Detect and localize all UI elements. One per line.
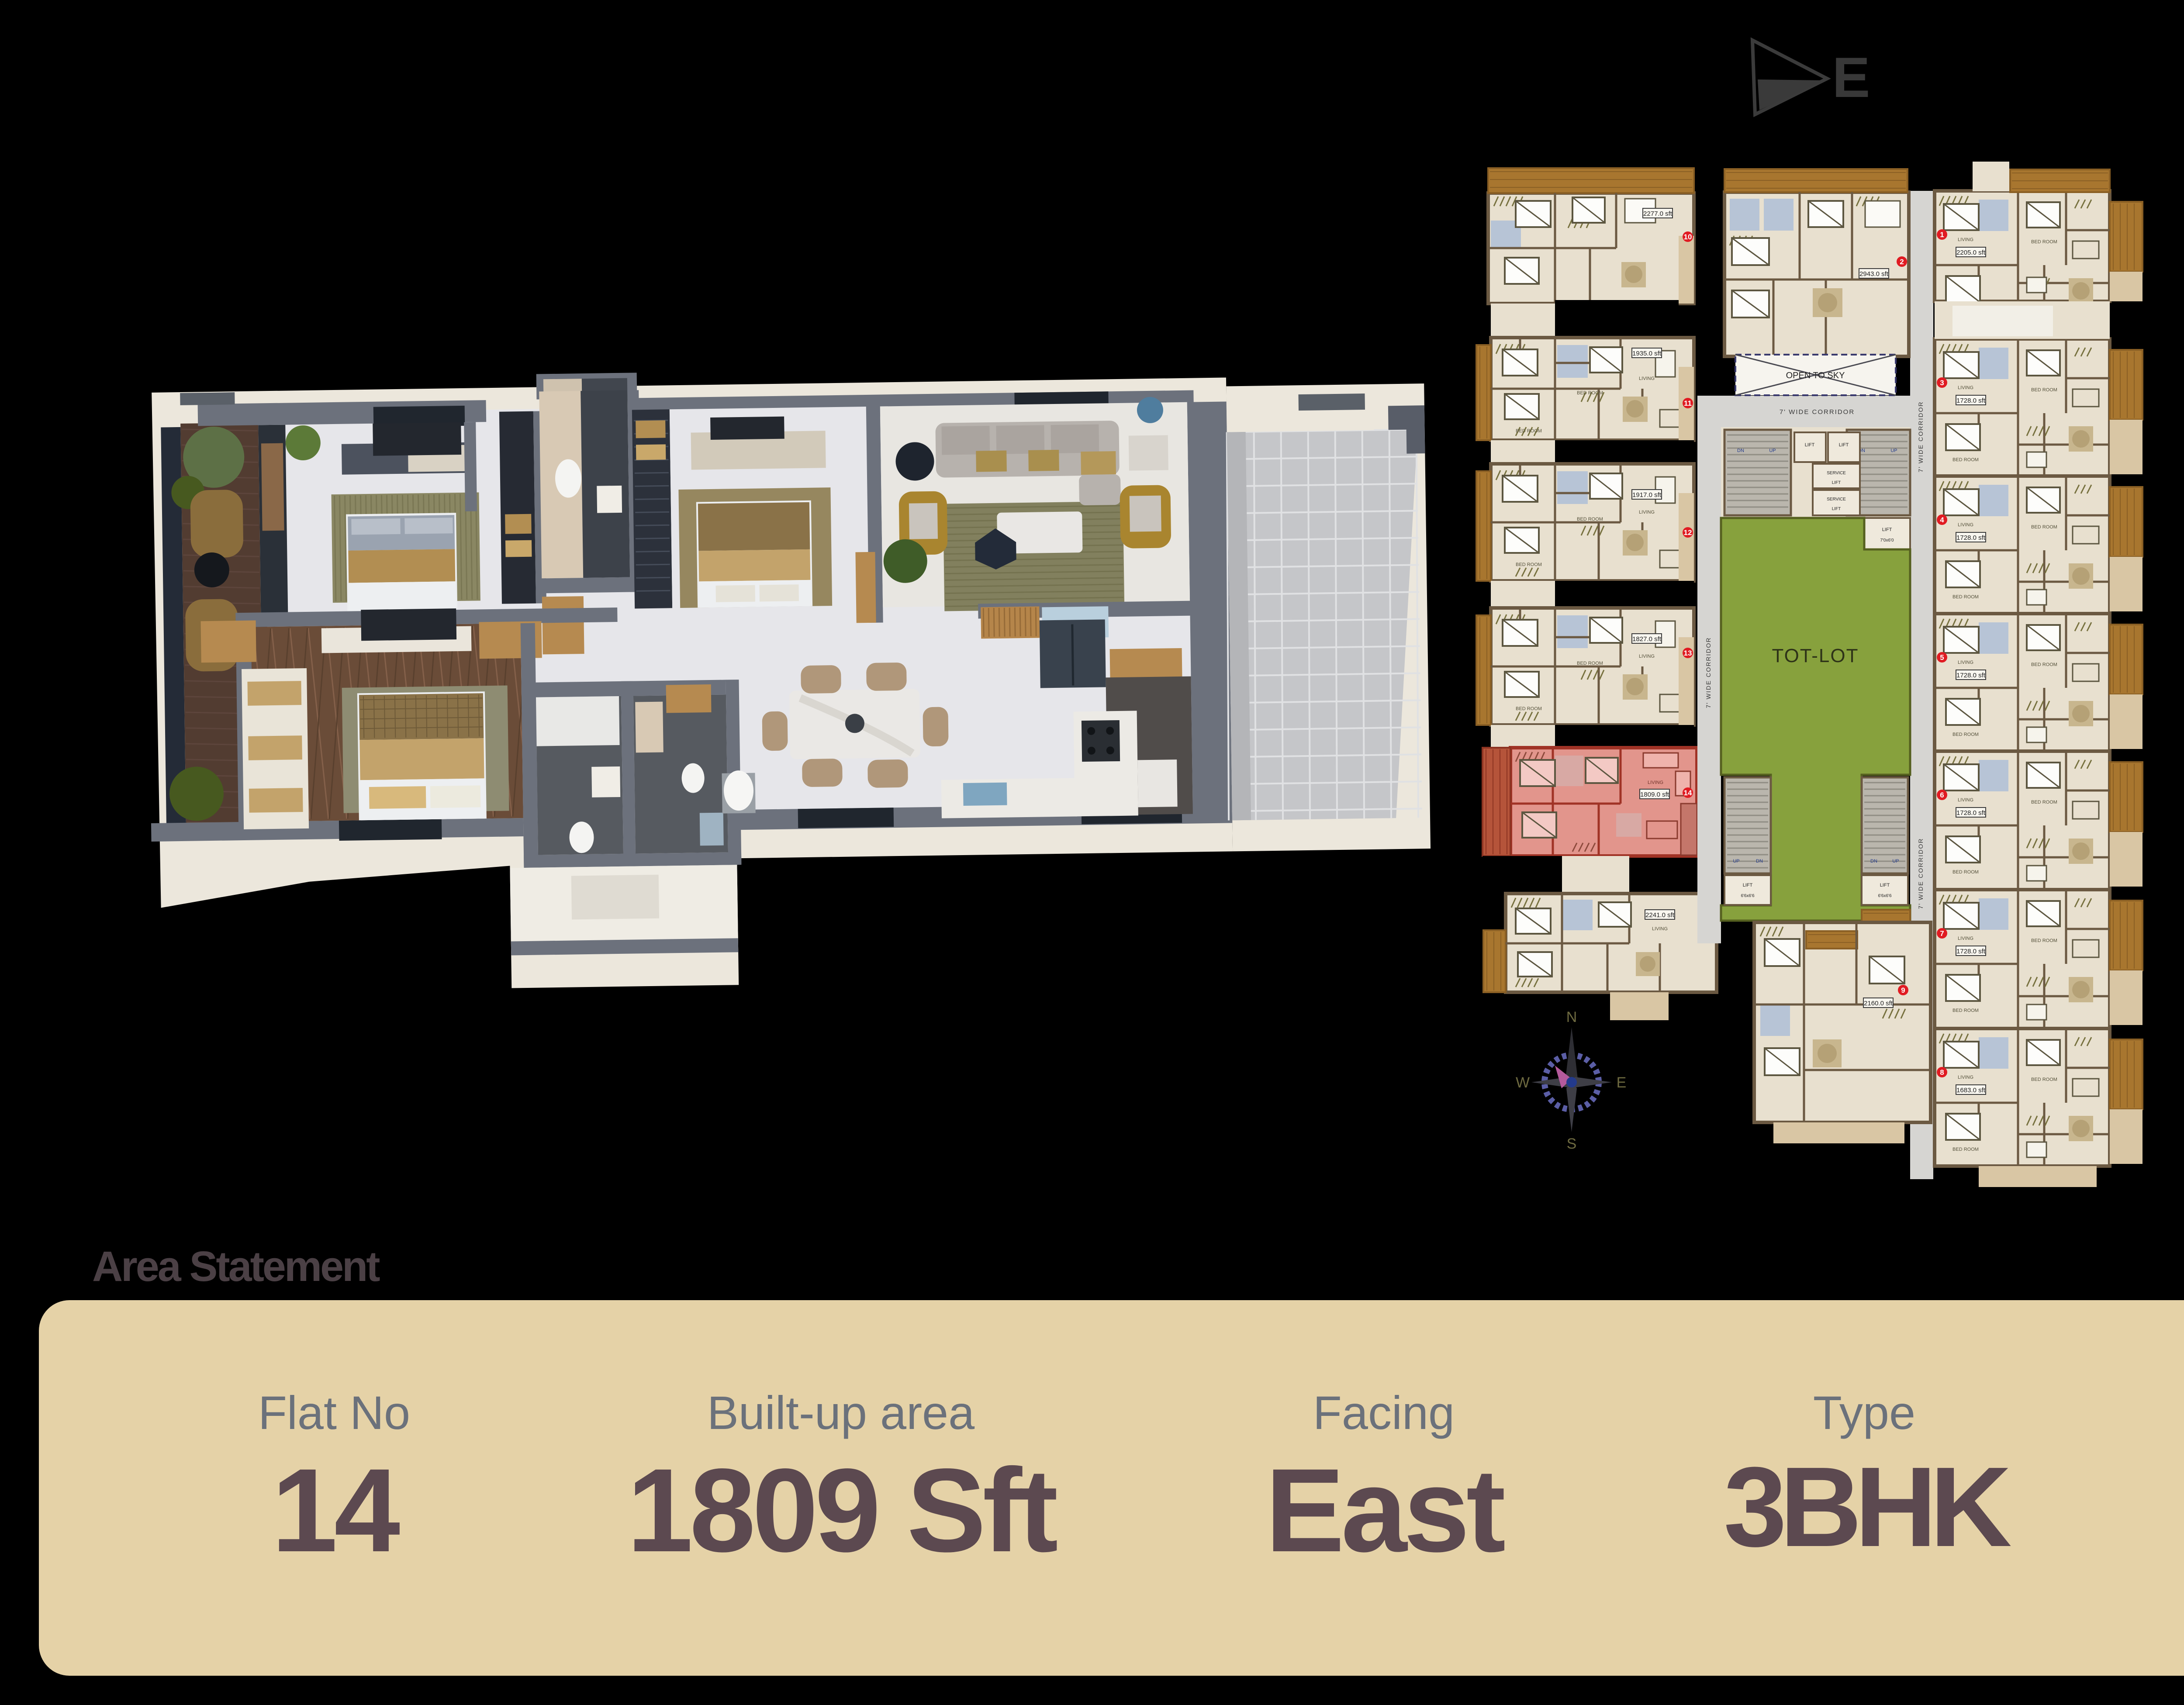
svg-text:12: 12 <box>1684 528 1692 537</box>
svg-text:2241.0 sft: 2241.0 sft <box>1645 911 1675 919</box>
svg-text:1683.0 sft: 1683.0 sft <box>1956 1087 1986 1094</box>
svg-text:7' WIDE CORRIDOR: 7' WIDE CORRIDOR <box>1917 838 1924 909</box>
svg-text:BED ROOM: BED ROOM <box>1952 870 1979 875</box>
svg-text:LIFT: LIFT <box>1880 883 1890 888</box>
svg-text:DN: DN <box>1737 448 1744 453</box>
svg-text:LIVING: LIVING <box>1958 385 1973 390</box>
svg-text:LIVING: LIVING <box>1639 510 1655 515</box>
svg-text:2205.0 sft: 2205.0 sft <box>1956 249 1986 256</box>
svg-text:1: 1 <box>1940 231 1944 239</box>
svg-text:BED ROOM: BED ROOM <box>2031 938 2057 943</box>
svg-text:7'0x6'0: 7'0x6'0 <box>1880 538 1894 543</box>
svg-text:1728.0 sft: 1728.0 sft <box>1956 672 1986 679</box>
svg-text:1917.0 sft: 1917.0 sft <box>1632 491 1662 499</box>
svg-text:UP: UP <box>1892 859 1899 864</box>
svg-text:TOT-LOT: TOT-LOT <box>1772 645 1859 666</box>
svg-text:BED ROOM: BED ROOM <box>1952 1147 1979 1152</box>
svg-text:DN: DN <box>1756 859 1763 864</box>
svg-text:BED ROOM: BED ROOM <box>2031 800 2057 805</box>
svg-text:BED ROOM: BED ROOM <box>1952 1008 1979 1013</box>
svg-text:6'6x6'6: 6'6x6'6 <box>1878 894 1892 898</box>
svg-text:BED ROOM: BED ROOM <box>1577 661 1603 666</box>
svg-text:LIVING: LIVING <box>1648 780 1663 785</box>
svg-text:BED ROOM: BED ROOM <box>2031 239 2057 245</box>
svg-text:3: 3 <box>1940 379 1944 387</box>
svg-text:7' WIDE CORRIDOR: 7' WIDE CORRIDOR <box>1705 637 1712 708</box>
svg-text:BED ROOM: BED ROOM <box>1516 428 1542 434</box>
svg-text:OPEN TO SKY: OPEN TO SKY <box>1786 371 1845 380</box>
svg-text:2943.0 sft: 2943.0 sft <box>1859 270 1889 278</box>
svg-text:BED ROOM: BED ROOM <box>2031 1077 2057 1082</box>
svg-text:7' WIDE CORRIDOR: 7' WIDE CORRIDOR <box>1780 408 1855 416</box>
svg-text:LIFT: LIFT <box>1839 442 1849 448</box>
svg-text:BED ROOM: BED ROOM <box>2031 387 2057 393</box>
svg-text:LIVING: LIVING <box>1958 660 1973 665</box>
svg-text:6'6x6'6: 6'6x6'6 <box>1741 894 1755 898</box>
svg-text:1728.0 sft: 1728.0 sft <box>1956 534 1986 542</box>
svg-text:5: 5 <box>1940 653 1944 662</box>
svg-text:SERVICE: SERVICE <box>1827 497 1846 502</box>
svg-text:UP: UP <box>1769 448 1776 453</box>
svg-text:LIVING: LIVING <box>1639 376 1655 381</box>
svg-text:BED ROOM: BED ROOM <box>1516 562 1542 567</box>
svg-text:LIVING: LIVING <box>1958 1075 1973 1080</box>
svg-text:LIVING: LIVING <box>1958 522 1973 528</box>
svg-text:7' WIDE CORRIDOR: 7' WIDE CORRIDOR <box>1917 401 1924 472</box>
svg-text:E: E <box>1617 1074 1627 1091</box>
svg-text:LIVING: LIVING <box>1958 936 1973 941</box>
svg-text:11: 11 <box>1684 399 1692 407</box>
svg-text:6: 6 <box>1940 791 1944 799</box>
svg-text:UP: UP <box>1733 859 1739 864</box>
svg-text:8: 8 <box>1940 1068 1944 1077</box>
svg-text:1728.0 sft: 1728.0 sft <box>1956 948 1986 955</box>
svg-text:LIVING: LIVING <box>1652 926 1668 932</box>
svg-text:4: 4 <box>1940 516 1944 524</box>
svg-text:LIVING: LIVING <box>1958 797 1973 803</box>
svg-text:2277.0 sft: 2277.0 sft <box>1643 210 1673 217</box>
svg-text:BED ROOM: BED ROOM <box>1952 732 1979 737</box>
svg-text:BED ROOM: BED ROOM <box>1952 594 1979 600</box>
svg-text:DN: DN <box>1870 859 1877 864</box>
svg-text:2160.0 sft: 2160.0 sft <box>1864 1000 1893 1007</box>
svg-text:UP: UP <box>1890 448 1897 453</box>
svg-text:LIVING: LIVING <box>1639 654 1655 659</box>
svg-text:1728.0 sft: 1728.0 sft <box>1956 397 1986 404</box>
svg-text:N: N <box>1566 1009 1577 1025</box>
svg-text:LIVING: LIVING <box>1958 237 1973 242</box>
svg-text:W: W <box>1516 1074 1530 1091</box>
svg-text:BED ROOM: BED ROOM <box>1577 517 1603 522</box>
svg-text:LIFT: LIFT <box>1832 507 1841 511</box>
svg-text:LIFT: LIFT <box>1743 883 1753 888</box>
svg-text:9: 9 <box>1901 986 1905 994</box>
svg-text:BED ROOM: BED ROOM <box>1577 390 1603 396</box>
svg-text:LIFT: LIFT <box>1832 480 1841 485</box>
svg-text:LIFT: LIFT <box>1805 442 1815 448</box>
svg-text:13: 13 <box>1684 649 1692 657</box>
svg-text:BED ROOM: BED ROOM <box>2031 525 2057 530</box>
svg-text:1809.0 sft: 1809.0 sft <box>1640 791 1669 798</box>
svg-text:S: S <box>1567 1136 1577 1152</box>
svg-text:BED ROOM: BED ROOM <box>2031 662 2057 667</box>
svg-text:E: E <box>1832 45 1870 109</box>
svg-text:BED ROOM: BED ROOM <box>1952 457 1979 462</box>
svg-text:2: 2 <box>1900 258 1904 266</box>
svg-text:BED ROOM: BED ROOM <box>1516 706 1542 711</box>
svg-text:10: 10 <box>1684 233 1692 241</box>
svg-text:1935.0 sft: 1935.0 sft <box>1632 350 1662 357</box>
svg-text:1728.0 sft: 1728.0 sft <box>1956 809 1986 817</box>
svg-text:14: 14 <box>1684 789 1692 797</box>
svg-text:LIFT: LIFT <box>1882 527 1892 532</box>
svg-text:7: 7 <box>1940 929 1944 938</box>
svg-text:SERVICE: SERVICE <box>1827 471 1846 476</box>
svg-text:1827.0 sft: 1827.0 sft <box>1632 635 1662 643</box>
